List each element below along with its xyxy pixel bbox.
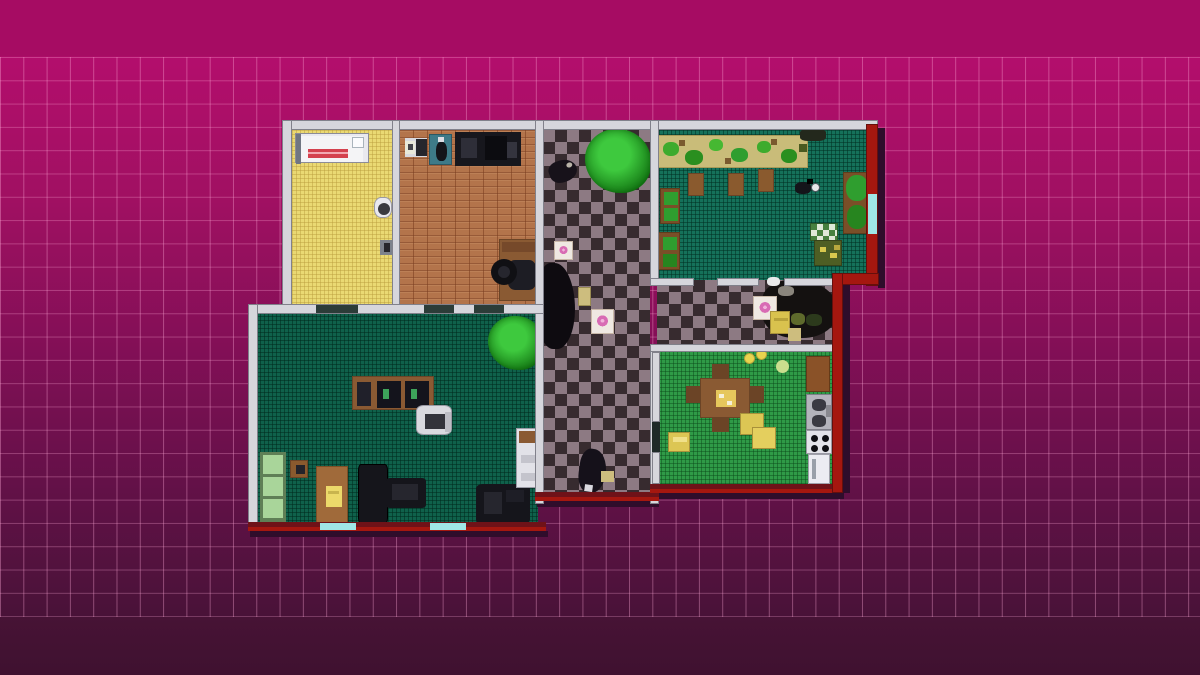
tv-1 [377, 381, 401, 408]
garden-stem-2 [725, 158, 731, 164]
desk-clutter-3 [507, 142, 517, 158]
planter-green-2 [664, 208, 678, 221]
olive-dot-1 [820, 247, 826, 252]
lounge-bottom-wall-a [650, 278, 694, 286]
shadow-below-kitchen [652, 493, 844, 499]
garden-dark [799, 144, 807, 152]
counter-handle [812, 459, 816, 479]
lounge-table-olive [814, 240, 842, 266]
burner-1 [811, 435, 818, 442]
garden-plant-3 [709, 139, 723, 151]
desk-clutter-1 [461, 138, 477, 158]
writing-desk [316, 466, 348, 528]
sink-basin-2 [812, 415, 826, 427]
ybox-line [774, 318, 788, 321]
fridge-brown [806, 356, 830, 392]
body-head [566, 162, 573, 169]
garden-stem-1 [679, 140, 685, 146]
sink-basin-1 [812, 399, 826, 411]
hall-box-1 [578, 287, 591, 306]
hall-pizza-box-2 [591, 309, 614, 334]
desk-paper [326, 486, 342, 507]
cash-register [405, 138, 427, 157]
kitchen-top-wall [650, 344, 834, 352]
green-cushion-1 [263, 455, 283, 474]
side-table-item [296, 465, 305, 474]
living-bottom-wall [248, 522, 546, 531]
hall-box-2 [601, 471, 614, 482]
black-desk [455, 132, 521, 166]
couch-green [260, 452, 286, 522]
planter-green-3 [663, 237, 677, 250]
stove [806, 430, 832, 454]
lounge-table-checkered [810, 223, 838, 241]
dining-chair-top [712, 364, 729, 378]
garden-plant-1 [663, 142, 679, 156]
kitchen-left-window [652, 422, 660, 452]
office-chair [491, 259, 517, 285]
couch-black-horizontal [386, 478, 426, 508]
lounge-stool-1 [688, 173, 704, 196]
plant-right-top [846, 175, 868, 201]
kitchen-left-wall-lower [652, 452, 660, 484]
living-window-2 [430, 523, 466, 530]
lounge-bottom-wall-b [717, 278, 759, 286]
midhall-yellow-box [770, 311, 790, 334]
lounge-bottom-wall-c [784, 278, 834, 286]
kitchen-pizza-box-2 [752, 427, 776, 449]
recliner-white [416, 405, 452, 435]
hall-pizza-box-1 [554, 241, 573, 260]
lime-item [776, 360, 789, 373]
tv-2-glint [411, 389, 417, 399]
olive-dot-2 [830, 253, 837, 258]
lounge-planter-1 [660, 188, 680, 224]
game-screen[interactable] [0, 0, 1200, 675]
top-wall [282, 120, 878, 130]
sink-faucet [826, 405, 831, 417]
lounge-clutter-dark [800, 129, 826, 141]
bed-pillow [352, 137, 364, 148]
body-shoe [584, 484, 593, 492]
chick-1 [744, 353, 755, 364]
couch-black-2 [476, 484, 530, 524]
shadow-right-lounge [878, 128, 885, 288]
garden-bed [658, 135, 808, 168]
garden-plant-4 [731, 148, 748, 162]
station-paper [438, 137, 444, 142]
black2-cushion-1 [484, 492, 502, 514]
tv-1-glint [383, 389, 389, 399]
garden-plant-2 [685, 150, 703, 165]
tv-2 [405, 381, 429, 408]
living-left-wall [248, 304, 258, 531]
enemy-head [811, 183, 820, 192]
hall-bush-large [585, 129, 651, 193]
bed-blanket-stripe [308, 152, 348, 154]
counter-white [808, 454, 830, 484]
dining-table [700, 378, 750, 418]
register-dot [408, 144, 413, 150]
midhall-white-bit [767, 277, 780, 286]
seated-figure [436, 142, 447, 161]
recliner-seat [425, 414, 445, 429]
shadow-right-kitchen [843, 285, 850, 493]
green-cushion-3 [263, 499, 283, 518]
plant-right-bottom [847, 205, 867, 229]
living-window-1 [320, 523, 356, 530]
hall-bottom-wall [535, 492, 659, 501]
shadow-below-living [250, 531, 548, 537]
sill-2 [424, 305, 454, 313]
sill-3 [474, 305, 504, 313]
table-tray [716, 390, 736, 407]
kitchen-right-red-wall [832, 273, 843, 493]
green-cushion-2 [263, 477, 283, 496]
tray-dot-2 [727, 401, 732, 405]
kitchen-sink [806, 394, 832, 430]
bed [295, 133, 369, 163]
planter-green-4 [663, 254, 677, 267]
lounge-window [868, 194, 877, 234]
couch-black-vertical [358, 464, 388, 524]
garden-stem-3 [771, 139, 777, 145]
garden-plant-5 [757, 141, 771, 153]
faucet-dark [384, 243, 390, 252]
planter-green-1 [664, 192, 678, 205]
lounge-stool-2 [728, 173, 744, 196]
chair-cushion [498, 266, 510, 278]
midhall-olive-bit [791, 313, 805, 325]
desk-clutter-2 [485, 136, 507, 160]
shadow-below-hall [537, 501, 659, 507]
side-table [290, 460, 308, 478]
dining-chair-right [750, 386, 764, 403]
desk-paper-line [328, 491, 339, 494]
burner-3 [811, 445, 818, 452]
kitchen-bottom-wall [650, 484, 842, 493]
tray-dot-1 [719, 394, 724, 398]
burner-4 [822, 445, 829, 452]
kitchen-box [668, 432, 690, 452]
hall-right-wall-upper [650, 120, 659, 286]
level-map [248, 120, 888, 534]
kitchen-left-wall-upper [652, 352, 660, 422]
dining-chair-bottom [712, 418, 729, 432]
teal-workstation [429, 134, 452, 165]
midhall-small-box [788, 328, 801, 341]
lounge-stool-3 [758, 169, 774, 192]
bedroom-office-divider [392, 120, 400, 314]
stand-item [357, 382, 371, 406]
enemy-gun [807, 179, 813, 184]
kitchen-box-flap [673, 437, 687, 442]
recliner-arm [445, 412, 451, 432]
black2-cushion-2 [506, 490, 524, 502]
garbage-green [806, 314, 822, 326]
black-cushion [392, 484, 418, 500]
sill-1 [316, 305, 358, 313]
enemy-figure [795, 179, 821, 197]
register-right [416, 139, 427, 156]
lounge-planter-2 [658, 232, 680, 270]
burner-2 [822, 435, 829, 442]
bedroom-left-wall [282, 120, 292, 314]
toilet-seat [378, 203, 390, 215]
garbage-light [778, 286, 794, 296]
olive-dot-3 [834, 245, 840, 250]
dining-chair-left [686, 386, 700, 403]
toilet [374, 197, 392, 218]
garden-plant-6 [781, 149, 797, 163]
